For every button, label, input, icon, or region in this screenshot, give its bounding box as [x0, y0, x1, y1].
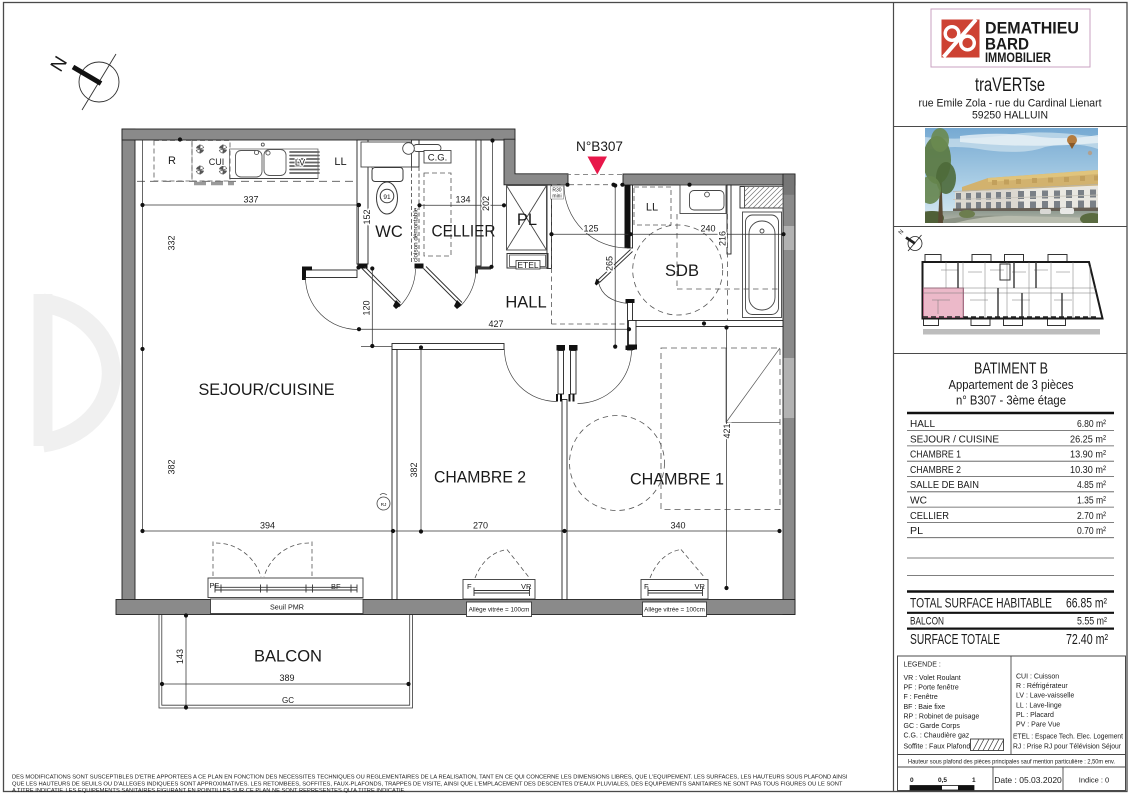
svg-text:CUI : Cuisson: CUI : Cuisson: [1016, 674, 1059, 681]
svg-text:BALCON: BALCON: [254, 648, 322, 666]
svg-text:Appartement de 3 pièces: Appartement de 3 pièces: [949, 377, 1074, 392]
svg-text:CELLIER: CELLIER: [910, 510, 949, 522]
svg-text:PL: PL: [517, 211, 537, 229]
svg-text:6.80 m²: 6.80 m²: [1077, 418, 1106, 430]
svg-text:RJ: RJ: [381, 502, 387, 508]
svg-text:CUI: CUI: [209, 157, 225, 167]
svg-text:LV: LV: [295, 158, 305, 168]
svg-text:GC: GC: [282, 696, 294, 705]
svg-text:A TITRE INDICATIF. LES EQUIPEM: A TITRE INDICATIF. LES EQUIPEMENTS SANIT…: [12, 788, 405, 794]
svg-text:1: 1: [972, 777, 976, 784]
svg-text:SEJOUR / CUISINE: SEJOUR / CUISINE: [910, 433, 999, 445]
svg-text:CHAMBRE 2: CHAMBRE 2: [434, 469, 526, 487]
svg-text:n° B307 - 3ème étage: n° B307 - 3ème étage: [956, 393, 1066, 408]
svg-text:R : Réfrigérateur: R : Réfrigérateur: [1016, 683, 1068, 690]
svg-text:265: 265: [605, 256, 615, 271]
svg-text:cloison démontable: cloison démontable: [413, 207, 420, 262]
svg-text:382: 382: [409, 462, 419, 477]
svg-text:Hauteur sous plafond des pièce: Hauteur sous plafond des pièces principa…: [908, 759, 1115, 766]
svg-text:Allège vitrée = 100cm: Allège vitrée = 100cm: [644, 607, 705, 614]
svg-text:216: 216: [718, 231, 728, 246]
svg-text:125: 125: [583, 223, 598, 233]
svg-text:PL : Placard: PL : Placard: [1016, 712, 1054, 719]
svg-text:WC: WC: [375, 223, 403, 241]
svg-text:143: 143: [175, 649, 185, 664]
svg-text:IMMOBILIER: IMMOBILIER: [985, 50, 1051, 65]
svg-text:394: 394: [260, 521, 275, 531]
svg-text:13.90 m²: 13.90 m²: [1070, 449, 1106, 461]
svg-text:CHAMBRE 1: CHAMBRE 1: [910, 449, 961, 461]
svg-text:270: 270: [473, 521, 488, 531]
svg-text:1.35 m²: 1.35 m²: [1077, 495, 1106, 507]
svg-text:PF : Porte fenêtre: PF : Porte fenêtre: [904, 685, 959, 692]
svg-text:382: 382: [167, 459, 177, 474]
svg-text:66.85 m²: 66.85 m²: [1066, 596, 1107, 611]
svg-text:Seuil PMR: Seuil PMR: [270, 603, 304, 612]
svg-text:QUE LES HAUTEURS DE SEUILS OU: QUE LES HAUTEURS DE SEUILS OU D'ALLEGES …: [12, 782, 843, 788]
svg-text:2.70 m²: 2.70 m²: [1077, 510, 1106, 522]
svg-text:0: 0: [910, 777, 914, 784]
svg-text:59250 HALLUIN: 59250 HALLUIN: [972, 110, 1048, 122]
svg-text:0.70 m²: 0.70 m²: [1077, 525, 1106, 537]
svg-text:91: 91: [383, 194, 391, 201]
svg-text:PF: PF: [210, 581, 220, 590]
svg-text:F : Fenêtre: F : Fenêtre: [904, 694, 938, 701]
svg-text:C.G. : Chaudière gaz: C.G. : Chaudière gaz: [904, 733, 970, 740]
svg-text:HALL: HALL: [910, 418, 935, 430]
svg-text:RJ : Prise RJ pour Télévisio: RJ : Prise RJ pour Télévision Séjour: [1013, 744, 1122, 751]
svg-text:72.40 m²: 72.40 m²: [1066, 632, 1108, 648]
svg-text:421: 421: [722, 423, 732, 438]
svg-text:VR: VR: [521, 582, 532, 591]
svg-text:BATIMENT B: BATIMENT B: [974, 361, 1048, 378]
svg-text:LV : Lave-vaisselle: LV : Lave-vaisselle: [1016, 693, 1074, 700]
svg-text:152: 152: [362, 209, 372, 224]
svg-text:BALCON: BALCON: [910, 616, 944, 628]
svg-text:202: 202: [481, 196, 491, 211]
svg-text:ETEL: ETEL: [517, 260, 539, 270]
svg-text:mini: mini: [552, 194, 561, 200]
svg-text:120: 120: [362, 300, 372, 315]
svg-text:SDB: SDB: [665, 262, 699, 280]
svg-text:427: 427: [488, 319, 503, 329]
svg-text:240: 240: [700, 223, 715, 233]
svg-text:PL: PL: [910, 525, 923, 537]
svg-text:Indice : 0: Indice : 0: [1079, 776, 1109, 785]
svg-text:F: F: [467, 582, 472, 591]
svg-text:LEGENDE :: LEGENDE :: [904, 662, 941, 669]
svg-text:R: R: [168, 155, 176, 167]
svg-text:CHAMBRE 1: CHAMBRE 1: [630, 471, 724, 489]
svg-text:VR : Volet Roulant: VR : Volet Roulant: [904, 675, 961, 682]
svg-text:SURFACE TOTALE: SURFACE TOTALE: [910, 632, 1000, 648]
svg-text:10.30 m²: 10.30 m²: [1070, 464, 1106, 476]
svg-text:5.55 m²: 5.55 m²: [1077, 616, 1107, 628]
svg-text:4.85 m²: 4.85 m²: [1077, 479, 1106, 491]
svg-text:340: 340: [670, 521, 685, 531]
svg-text:BF : Baie fixe: BF : Baie fixe: [904, 704, 946, 711]
svg-text:0,5: 0,5: [938, 777, 947, 784]
svg-text:SALLE DE BAIN: SALLE DE BAIN: [910, 479, 979, 491]
svg-text:GC : Garde Corps: GC : Garde Corps: [904, 723, 961, 730]
svg-text:332: 332: [167, 235, 177, 250]
svg-text:389: 389: [279, 673, 294, 683]
svg-text:Date : 05.03.2020: Date : 05.03.2020: [994, 775, 1062, 785]
svg-text:RP : Robinet de puisage: RP : Robinet de puisage: [904, 713, 980, 720]
svg-text:F: F: [644, 582, 649, 591]
svg-text:traVERTse: traVERTse: [975, 75, 1045, 96]
svg-text:LL: LL: [334, 156, 346, 168]
svg-text:ETEL : Espace Tech. Elec. Log: ETEL : Espace Tech. Elec. Logement: [1013, 734, 1123, 741]
svg-text:Soffite : Faux Plafond: Soffite : Faux Plafond: [904, 744, 971, 751]
svg-text:WC: WC: [910, 495, 927, 507]
svg-text:CHAMBRE 2: CHAMBRE 2: [910, 464, 961, 476]
svg-text:DES MODIFICATIONS SONT SUSCEPT: DES MODIFICATIONS SONT SUSCEPTIBLES D'ET…: [12, 775, 848, 781]
svg-text:C.G.: C.G.: [428, 153, 448, 164]
svg-text:HALL: HALL: [505, 294, 546, 312]
svg-text:LL: LL: [646, 202, 658, 214]
svg-text:SEJOUR/CUISINE: SEJOUR/CUISINE: [199, 381, 335, 399]
svg-text:26.25 m²: 26.25 m²: [1070, 433, 1106, 445]
svg-text:Allège vitrée = 100cm: Allège vitrée = 100cm: [469, 607, 530, 614]
svg-text:CELLIER: CELLIER: [432, 223, 496, 241]
svg-text:337: 337: [243, 194, 258, 204]
svg-text:BF: BF: [331, 582, 341, 591]
svg-text:134: 134: [455, 194, 470, 204]
svg-text:rue Emile Zola - rue du Cardin: rue Emile Zola - rue du Cardinal Lienart: [919, 98, 1103, 110]
svg-text:VR: VR: [695, 582, 706, 591]
svg-text:LL : Lave-linge: LL : Lave-linge: [1016, 702, 1062, 709]
svg-text:TOTAL SURFACE HABITABLE: TOTAL SURFACE HABITABLE: [910, 596, 1052, 611]
svg-text:N°B307: N°B307: [576, 139, 623, 154]
svg-text:PV : Pare Vue: PV : Pare Vue: [1016, 722, 1060, 729]
